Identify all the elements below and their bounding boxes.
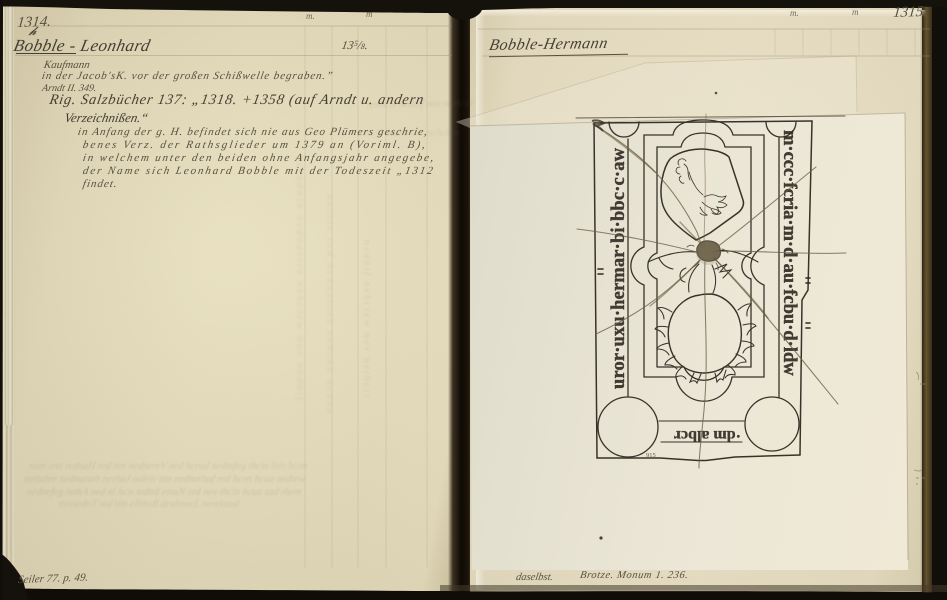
svg-text:uror·uxu·hermar·bi·bbc·c·aw: uror·uxu·hermar·bi·bbc·c·aw	[609, 147, 629, 389]
svg-text:·dm albcr: ·dm albcr	[674, 427, 741, 444]
svg-text:915: 915	[646, 452, 656, 459]
